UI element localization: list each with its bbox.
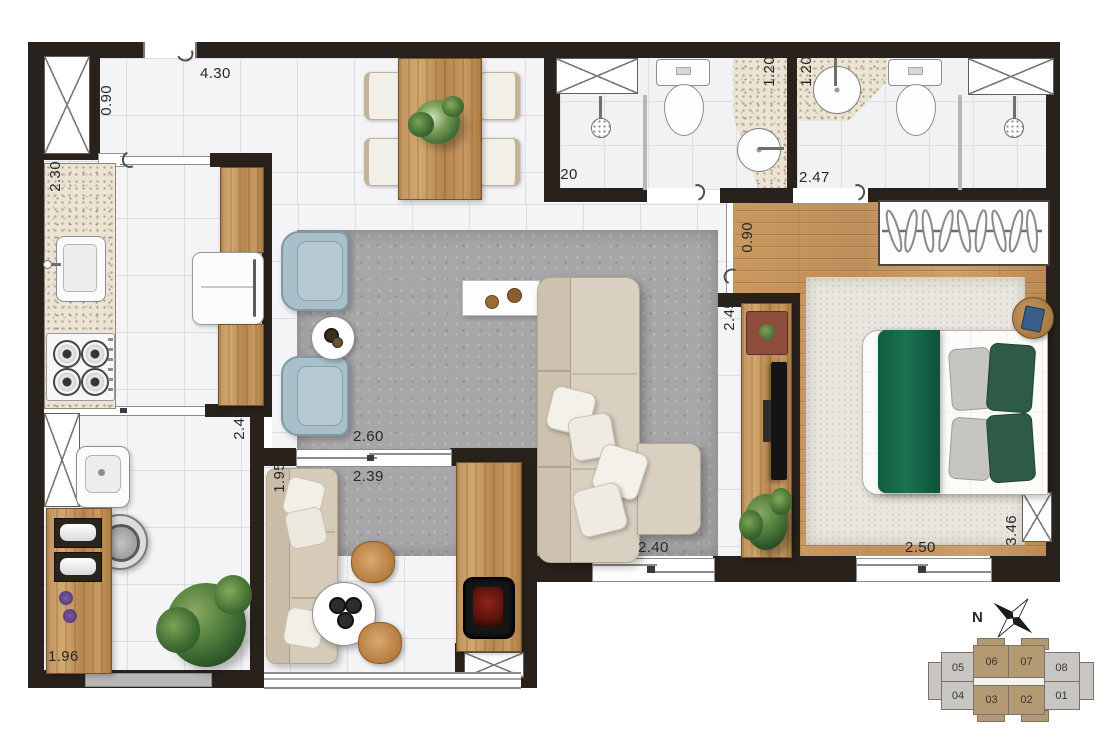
- stove: [46, 333, 115, 401]
- bed-pillow-green: [986, 342, 1037, 413]
- bath-social-shaft: [556, 58, 638, 94]
- burner-icon: [81, 340, 109, 368]
- dim-label: 2.20: [547, 167, 578, 182]
- floor-plan: 4.30 0.90 2.30 2.20 1.20 1.20 2.47 0.90 …: [0, 0, 1107, 738]
- entry-door: [143, 42, 197, 58]
- wall-top: [193, 42, 1060, 58]
- dim-label: 2.40: [638, 540, 669, 555]
- pouf: [358, 622, 402, 664]
- dim-label: 3.46: [1004, 515, 1019, 546]
- fridge: [192, 252, 264, 325]
- dim-label: 2.47: [232, 409, 247, 440]
- unit-05: 05: [941, 652, 975, 683]
- toilet-tank: [888, 59, 942, 86]
- shower-head-icon: [1004, 118, 1024, 138]
- tv-stand: [763, 400, 771, 442]
- faucet-icon: [834, 58, 837, 86]
- stove-knobs: [108, 338, 113, 396]
- armchair: [281, 231, 349, 311]
- compass-north-label: N: [972, 610, 983, 625]
- bedroom-ac-box: [1022, 492, 1052, 542]
- shower-glass-social: [643, 95, 647, 190]
- towel-niche: [54, 552, 102, 582]
- wall-bottom-b: [713, 556, 856, 582]
- hangers-icon: [880, 202, 1044, 260]
- faucet-icon: [758, 147, 784, 150]
- shower-head-icon: [591, 118, 611, 138]
- kitchen-pocket-door: [120, 156, 210, 165]
- toilet-tank: [656, 59, 710, 86]
- shower-icon: [599, 96, 602, 119]
- bath-suite-sink: [813, 66, 861, 114]
- wall-bath-divider: [787, 57, 797, 202]
- side-table: [311, 316, 355, 360]
- bath-suite-door: [793, 188, 868, 203]
- bedroom-sliding-door: [856, 558, 992, 582]
- dim-label: 1.96: [48, 649, 79, 664]
- wall-bath-bottom-b: [720, 188, 793, 203]
- unit-04: 04: [941, 681, 975, 710]
- dim-label: 2.45: [722, 300, 737, 331]
- dim-label: 1.95: [272, 462, 287, 493]
- unit-02: 02: [1008, 685, 1045, 715]
- burner-icon: [53, 368, 81, 396]
- entry-shaft: [44, 56, 90, 154]
- kitchen-cabinet-lower: [218, 324, 264, 406]
- unit-08: 08: [1043, 652, 1080, 683]
- table-plant-icon: [414, 100, 460, 144]
- dining-chair: [478, 138, 520, 186]
- dim-label: 1.20: [762, 56, 777, 87]
- unit-03: 03: [973, 685, 1010, 715]
- bed-pillow-green: [986, 412, 1037, 483]
- flower-icon: [63, 609, 77, 623]
- nightstand: [1012, 297, 1054, 339]
- dim-label: 0.90: [99, 85, 114, 116]
- armchair: [281, 356, 349, 436]
- dim-label: 1.20: [799, 56, 814, 87]
- unit-keyplan: 05 04 08 01 06 07 03 02: [922, 636, 1098, 722]
- burner-icon: [53, 340, 81, 368]
- dim-label: 2.47: [799, 170, 830, 185]
- pouf: [351, 541, 395, 583]
- decor-tray: [746, 311, 788, 355]
- dim-label: 2.30: [48, 161, 63, 192]
- shower-glass-suite: [958, 95, 962, 190]
- balcony-railing: [264, 672, 521, 689]
- dim-label: 2.39: [353, 469, 384, 484]
- flower-icon: [59, 591, 73, 605]
- faucet-icon: [43, 260, 52, 269]
- plant-icon: [744, 494, 788, 550]
- shower-icon: [1013, 96, 1016, 119]
- kitchen-sink: [56, 236, 106, 302]
- balcony-sliding-door: [296, 449, 452, 467]
- bath-social-sink: [737, 128, 781, 172]
- dim-label: 2.50: [905, 540, 936, 555]
- laundry-sink: [76, 446, 130, 508]
- wall-bath-bottom-a: [544, 188, 647, 202]
- dining-chair: [478, 72, 520, 120]
- closet: [878, 200, 1050, 266]
- dim-label: 2.60: [353, 429, 384, 444]
- grill: [463, 577, 515, 639]
- console-table: [462, 280, 540, 316]
- wall-bottom-c: [990, 556, 1060, 582]
- towel-niche: [54, 518, 102, 548]
- bath-suite-shaft: [968, 58, 1054, 95]
- wall-service-right: [250, 404, 264, 688]
- sofa-pillow: [283, 505, 328, 550]
- burner-icon: [81, 368, 109, 396]
- laundry-shaft: [44, 413, 80, 507]
- bed-runner: [878, 330, 940, 493]
- unit-01: 01: [1043, 681, 1080, 710]
- service-window: [85, 673, 212, 687]
- plant-icon: [166, 583, 246, 667]
- dim-label: 4.30: [200, 66, 231, 81]
- unit-07: 07: [1008, 645, 1045, 679]
- unit-06: 06: [973, 645, 1010, 679]
- kitchen-cabinet-upper: [220, 167, 264, 253]
- bath-social-door: [647, 188, 703, 203]
- tv-panel: [771, 362, 787, 480]
- dim-label: 0.90: [740, 222, 755, 253]
